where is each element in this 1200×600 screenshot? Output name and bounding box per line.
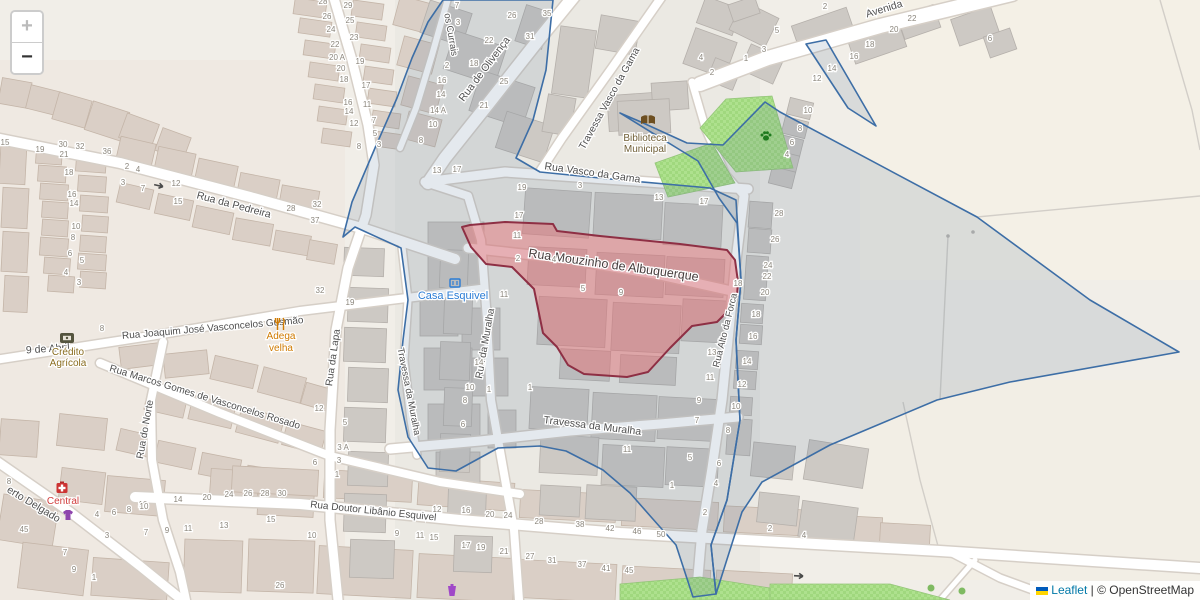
pharmacy-icon xyxy=(57,482,68,494)
house-number: 42 xyxy=(606,524,615,533)
house-number: 20 xyxy=(337,64,346,73)
house-number: 16 xyxy=(749,332,758,341)
house-number: 11 xyxy=(416,531,425,540)
house-number: 6 xyxy=(461,420,466,429)
house-number: 11 xyxy=(500,290,509,299)
house-number: 11 xyxy=(623,445,632,454)
building xyxy=(79,271,106,289)
house-number: 26 xyxy=(276,581,285,590)
house-number: 24 xyxy=(504,511,513,520)
zoom-control: + − xyxy=(10,10,44,75)
house-number: 20 xyxy=(486,510,495,519)
building xyxy=(539,485,581,517)
house-number: 2 xyxy=(125,162,130,171)
house-number: 17 xyxy=(462,541,471,550)
house-number: 14 xyxy=(174,495,183,504)
building xyxy=(343,407,386,442)
house-number: 7 xyxy=(63,548,68,557)
house-number: 32 xyxy=(316,286,325,295)
poi-label: Casa Esquivel xyxy=(418,290,488,302)
house-number: 16 xyxy=(438,76,447,85)
house-number: 15 xyxy=(430,533,439,542)
house-number: 2 xyxy=(703,508,708,517)
house-number: 20 xyxy=(890,25,899,34)
house-number: 9 xyxy=(619,288,624,297)
house-number: 7 xyxy=(455,1,460,10)
house-number: 3 xyxy=(77,278,82,287)
house-number: 6 xyxy=(988,34,993,43)
house-number: 30 xyxy=(59,140,68,149)
house-number: 2 xyxy=(823,2,828,11)
house-number: 11 xyxy=(363,100,372,109)
house-number: 3 A xyxy=(337,443,349,452)
building xyxy=(47,275,74,293)
house-number: 8 xyxy=(726,426,731,435)
house-number: 8 xyxy=(127,505,132,514)
house-number: 18 xyxy=(65,168,74,177)
house-number: 8 xyxy=(100,324,105,333)
house-number: 10 xyxy=(732,402,741,411)
house-number: 20 A xyxy=(329,53,346,62)
building xyxy=(39,237,68,257)
house-number: 5 xyxy=(775,26,780,35)
map-canvas[interactable]: Rua de OlivençaTravessa Vasco da Gamaos … xyxy=(0,0,1200,600)
house-number: 8 xyxy=(419,136,424,145)
house-number: 2 xyxy=(445,61,450,70)
house-number: 22 xyxy=(331,40,340,49)
tree xyxy=(928,585,935,592)
building xyxy=(56,414,107,451)
house-number: 18 xyxy=(734,279,743,288)
map-viewport[interactable]: Rua de OlivençaTravessa Vasco da Gamaos … xyxy=(0,0,1200,600)
house-number: 1 xyxy=(92,573,97,582)
house-number: 35 xyxy=(543,9,552,18)
house-number: 21 xyxy=(500,547,509,556)
house-number: 3 xyxy=(377,140,382,149)
building xyxy=(77,175,106,193)
house-number: 4 xyxy=(699,53,704,62)
house-number: 11 xyxy=(184,524,193,533)
building xyxy=(79,195,108,213)
house-number: 16 xyxy=(462,506,471,515)
house-number: 18 xyxy=(866,40,875,49)
house-number: 31 xyxy=(526,32,535,41)
poi-label: Crédito xyxy=(52,347,85,358)
house-number: 16 xyxy=(68,190,77,199)
house-number: 9 xyxy=(697,396,702,405)
house-number: 38 xyxy=(576,520,585,529)
house-number: 13 xyxy=(220,521,229,530)
house-number: 14 xyxy=(743,357,752,366)
house-number: 36 xyxy=(103,147,112,156)
house-number: 12 xyxy=(315,404,324,413)
house-number: 27 xyxy=(526,552,535,561)
house-number: 28 xyxy=(287,204,296,213)
house-number: 4 xyxy=(552,255,557,264)
house-number: 7 xyxy=(141,184,146,193)
house-number: 15 xyxy=(1,138,10,147)
house-number: 3 xyxy=(456,18,461,27)
house-number: 5 xyxy=(343,418,348,427)
house-number: 13 xyxy=(708,348,717,357)
house-number: 19 xyxy=(518,183,527,192)
house-number: 22 xyxy=(908,14,917,23)
house-number: 28 xyxy=(535,517,544,526)
house-number: 9 xyxy=(395,529,400,538)
house-number: 8 xyxy=(7,477,12,486)
house-number: 14 A xyxy=(430,106,447,115)
house-number: 18 xyxy=(752,310,761,319)
house-number: 6 xyxy=(313,458,318,467)
poi-label: Municipal xyxy=(624,144,666,155)
building xyxy=(453,535,492,572)
house-number: 8 xyxy=(71,233,76,242)
house-number: 32 xyxy=(76,142,85,151)
house-number: 17 xyxy=(453,165,462,174)
building xyxy=(41,201,68,219)
leaflet-link[interactable]: Leaflet xyxy=(1051,583,1087,597)
house-number: 25 xyxy=(500,77,509,86)
building xyxy=(306,240,337,265)
poi-label: Central xyxy=(47,496,79,507)
house-number: 16 xyxy=(344,98,353,107)
house-number: 1 xyxy=(487,385,492,394)
house-number: 19 xyxy=(356,57,365,66)
house-number: 4 xyxy=(64,268,69,277)
house-number: 10 xyxy=(72,222,81,231)
house-number: 2 xyxy=(516,254,521,263)
house-number: 6 xyxy=(68,249,73,258)
house-number: 2 xyxy=(768,524,773,533)
house-number: 5 xyxy=(688,453,693,462)
house-number: 14 xyxy=(475,358,484,367)
house-number: 37 xyxy=(311,216,320,225)
house-number: 16 xyxy=(850,52,859,61)
house-number: 28 xyxy=(775,209,784,218)
house-number: 3 xyxy=(578,181,583,190)
house-number: 26 xyxy=(244,489,253,498)
poi-label: Adega xyxy=(267,331,296,342)
house-number: 8 xyxy=(463,396,468,405)
house-number: 23 xyxy=(350,33,359,42)
ukraine-flag-icon xyxy=(1036,587,1048,595)
tree xyxy=(959,588,966,595)
house-number: 21 xyxy=(480,101,489,110)
building xyxy=(17,542,88,596)
house-number: 12 xyxy=(350,119,359,128)
house-number: 3 xyxy=(337,456,342,465)
house-number: 19 xyxy=(477,543,486,552)
house-number: 17 xyxy=(362,81,371,90)
house-number: 41 xyxy=(602,564,611,573)
house-number: 15 xyxy=(174,197,183,206)
house-number: 26 xyxy=(771,235,780,244)
house-number: 37 xyxy=(578,560,587,569)
osm-copyright: © OpenStreetMap xyxy=(1097,583,1194,597)
house-number: 18 xyxy=(340,75,349,84)
house-number: 17 xyxy=(700,197,709,206)
house-number: 26 xyxy=(508,11,517,20)
poi-label: velha xyxy=(269,343,293,354)
building xyxy=(183,539,243,593)
house-number: 24 xyxy=(327,25,336,34)
house-number: 3 xyxy=(105,531,110,540)
house-number: 2 xyxy=(710,68,715,77)
building xyxy=(1,187,29,228)
house-number: 7 xyxy=(372,116,377,125)
attribution-bar: Leaflet | © OpenStreetMap xyxy=(1030,581,1200,600)
house-number: 10 xyxy=(308,531,317,540)
house-number: 1 xyxy=(670,481,675,490)
house-number: 25 xyxy=(346,16,355,25)
building xyxy=(0,419,39,458)
house-number: 5 xyxy=(581,284,586,293)
house-number: 14 xyxy=(70,199,79,208)
house-number: 4 xyxy=(95,510,100,519)
house-number: 15 xyxy=(267,515,276,524)
house-number: 22 xyxy=(485,36,494,45)
house-number: 29 xyxy=(344,1,353,10)
house-number: 50 xyxy=(657,530,666,539)
house-number: 26 xyxy=(323,12,332,21)
house-number: 9 xyxy=(72,565,77,574)
building xyxy=(3,275,29,312)
house-number: 46 xyxy=(633,527,642,536)
house-number: 5 xyxy=(80,256,85,265)
house-number: 45 xyxy=(20,525,29,534)
house-number: 20 xyxy=(203,493,212,502)
house-number: 6 xyxy=(717,459,722,468)
building xyxy=(349,539,394,579)
house-number: 1 xyxy=(744,54,749,63)
building xyxy=(1,231,29,272)
building xyxy=(79,235,106,253)
house-number: 22 xyxy=(763,272,772,281)
house-number: 1 xyxy=(528,383,533,392)
house-number: 45 xyxy=(625,566,634,575)
book-icon xyxy=(641,115,655,124)
house-number: 5 xyxy=(373,129,378,138)
house-number: 19 xyxy=(36,145,45,154)
house-number: 31 xyxy=(548,556,557,565)
house-number: 11 xyxy=(513,231,522,240)
house-number: 1 xyxy=(335,470,340,479)
building xyxy=(347,367,388,402)
house-number: 10 xyxy=(466,383,475,392)
house-number: 6 xyxy=(790,138,795,147)
zoom-in-button[interactable]: + xyxy=(12,12,42,42)
house-number: 28 xyxy=(261,489,270,498)
house-number: 3 xyxy=(121,178,126,187)
house-number: 8 xyxy=(798,124,803,133)
house-number: 14 xyxy=(345,107,354,116)
house-number: 32 xyxy=(313,200,322,209)
house-number: 20 xyxy=(761,288,770,297)
house-number: 24 xyxy=(764,261,773,270)
poi-label: Biblioteca xyxy=(623,133,667,144)
house-number: 12 xyxy=(172,179,181,188)
house-number: 4 xyxy=(802,531,807,540)
poi-label: Agrícola xyxy=(50,358,87,369)
house-number: 14 xyxy=(437,90,446,99)
house-number: 10 xyxy=(429,120,438,129)
house-number: 6 xyxy=(112,508,117,517)
house-number: 19 xyxy=(346,298,355,307)
house-number: 17 xyxy=(515,211,524,220)
house-number: 12 xyxy=(433,505,442,514)
house-number: 7 xyxy=(144,528,149,537)
house-number: 12 xyxy=(813,74,822,83)
house-number: 9 xyxy=(165,526,170,535)
zoom-out-button[interactable]: − xyxy=(12,42,42,73)
house-number: 7 xyxy=(695,416,700,425)
house-number: 30 xyxy=(278,489,287,498)
house-number: 8 xyxy=(357,142,362,151)
building xyxy=(81,215,108,233)
bank-icon xyxy=(60,333,74,343)
house-number: 21 xyxy=(60,150,69,159)
house-number: 10 xyxy=(804,106,813,115)
building xyxy=(41,219,68,237)
house-number: 14 xyxy=(828,64,837,73)
house-number: 11 xyxy=(706,373,715,382)
house-number: 4 xyxy=(785,150,790,159)
house-number: 4 xyxy=(714,479,719,488)
building xyxy=(37,165,66,183)
house-number: 12 xyxy=(738,380,747,389)
building xyxy=(39,183,68,201)
house-number: 13 xyxy=(433,166,442,175)
house-number: 13 xyxy=(655,193,664,202)
house-number: 28 xyxy=(319,0,328,6)
building xyxy=(163,350,209,378)
house-number: 10 xyxy=(140,502,149,511)
attribution-separator: | xyxy=(1087,583,1097,597)
building xyxy=(757,492,800,526)
house-number: 24 xyxy=(225,490,234,499)
house-number: 4 xyxy=(136,165,141,174)
house-number: 3 xyxy=(762,45,767,54)
building xyxy=(343,327,386,362)
house-number: 18 xyxy=(470,59,479,68)
